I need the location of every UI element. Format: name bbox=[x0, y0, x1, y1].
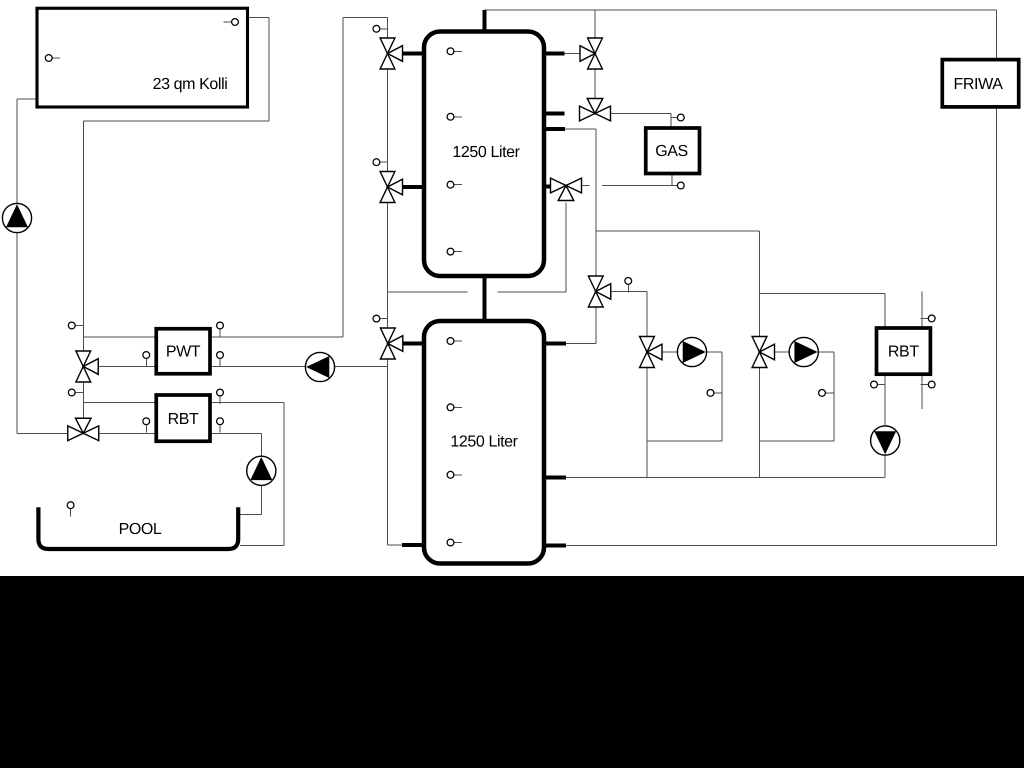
svg-text:1250 Liter: 1250 Liter bbox=[452, 144, 520, 161]
svg-text:RBT: RBT bbox=[888, 344, 919, 361]
svg-text:POOL: POOL bbox=[119, 521, 162, 538]
svg-text:RBT: RBT bbox=[168, 411, 199, 428]
svg-text:PWT: PWT bbox=[166, 344, 201, 361]
svg-text:GAS: GAS bbox=[655, 143, 688, 160]
svg-text:1250 Liter: 1250 Liter bbox=[450, 434, 518, 451]
svg-text:23 qm Kolli: 23 qm Kolli bbox=[153, 76, 228, 93]
svg-text:FRIWA: FRIWA bbox=[954, 76, 1004, 93]
